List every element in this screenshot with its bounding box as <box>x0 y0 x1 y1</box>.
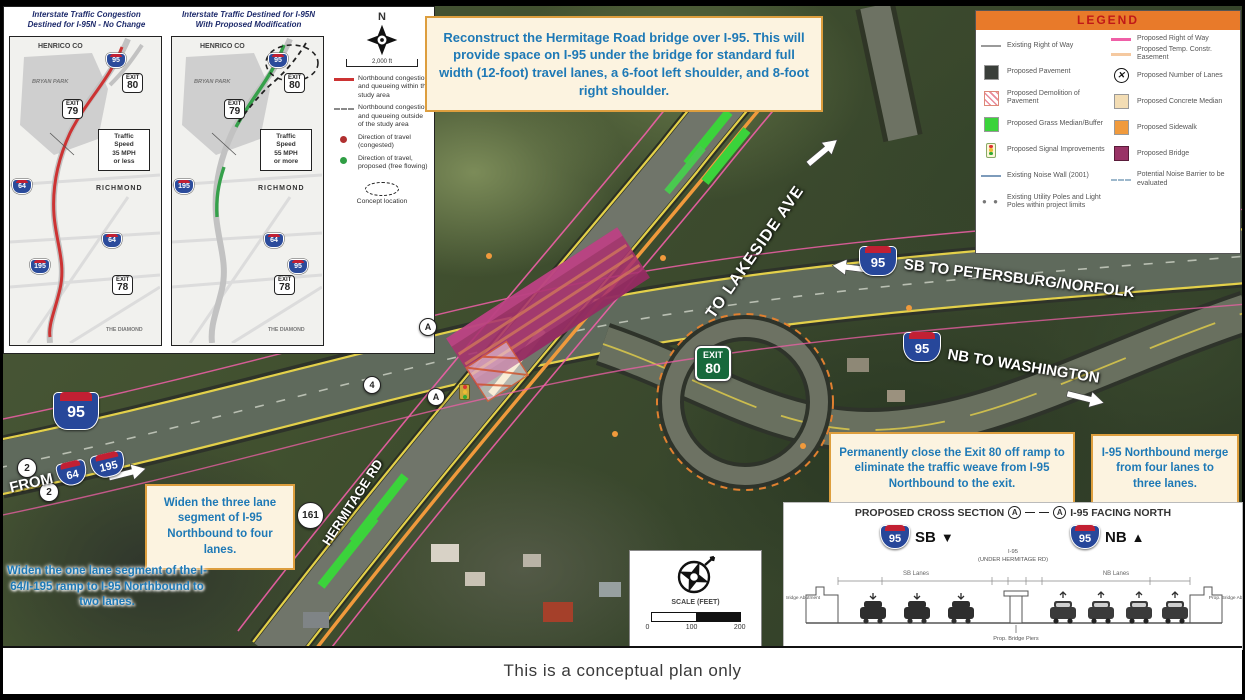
i195-shield: 195 <box>174 179 194 194</box>
inset-scale: 2,000 ft <box>346 59 418 67</box>
concept-oval-swatch <box>365 182 399 196</box>
north-compass-icon <box>332 23 432 59</box>
demolition-swatch-icon <box>980 91 1002 106</box>
legend-item: Existing Noise Wall (2001) <box>980 163 1106 189</box>
utility-pole-dot <box>906 305 912 311</box>
building <box>887 390 905 402</box>
inset-left-map: HENRICO CO BRYAN PARK RICHMOND THE DIAMO… <box>9 36 162 346</box>
right-abutment-label: Prop. Bridge Abutment <box>1209 595 1242 601</box>
scale-bar <box>651 612 741 622</box>
arrow-to-lakeside <box>803 134 842 171</box>
city-label: RICHMOND <box>96 185 143 192</box>
inset-legend: N 2,000 ft Northbound congestion and que… <box>332 11 432 351</box>
diamond-label: THE DIAMOND <box>106 327 143 333</box>
utility-pole-dot <box>612 431 618 437</box>
building <box>523 554 541 567</box>
legend-left-column: Existing Right of Way Proposed Pavement … <box>980 33 1106 215</box>
legend-item: Proposed Grass Median/Buffer <box>980 111 1106 137</box>
building-red-roof <box>543 602 573 622</box>
section-marker-a: A <box>1008 506 1021 519</box>
speed-box: Traffic Speed 55 MPH or more <box>260 129 312 171</box>
i64-shield: 64 <box>102 233 122 248</box>
footer-strip: This is a conceptual plan only <box>3 646 1242 694</box>
pavement-swatch-icon <box>980 65 1002 80</box>
traffic-signal-marker <box>459 384 470 400</box>
i95-shield-nb: 95 <box>903 332 941 362</box>
building <box>303 612 329 628</box>
exit-78-sign: EXIT78 <box>274 275 295 295</box>
utility-pole-dot <box>486 253 492 259</box>
lane-count-marker-4: 4 <box>363 376 381 394</box>
bridge-pier <box>1010 595 1022 623</box>
left-abutment <box>806 587 838 623</box>
legend-item: Proposed Bridge <box>1110 141 1236 167</box>
nb-lanes-label: NB Lanes <box>1103 571 1129 577</box>
inset-proposed: Interstate Traffic Destined for I-95N Wi… <box>169 10 328 350</box>
red-line-swatch <box>334 78 354 81</box>
cross-section-marker-a: A <box>419 318 437 336</box>
callout-widen-one-lane: Widen the one lane segment of the I-64/I… <box>5 564 209 611</box>
legend-item-travel-congested: Direction of travel (congested) <box>334 134 430 151</box>
building <box>847 358 869 372</box>
north-label: N <box>332 11 432 23</box>
inset-right-title: Interstate Traffic Destined for I-95N Wi… <box>169 10 328 34</box>
piers-label: Prop. Bridge Piers <box>993 636 1039 642</box>
i95-shield: 95 <box>288 259 308 274</box>
legend-item: Proposed Temp. Constr. Easement <box>1110 46 1236 63</box>
legend-item: Proposed Right of Way <box>1110 33 1236 46</box>
building <box>599 582 621 597</box>
exit-79-sign: EXIT79 <box>62 99 83 119</box>
exit-80-sign: EXIT80 <box>284 73 305 93</box>
sb-cars <box>860 593 974 624</box>
xsec-subtitle: I-95 (UNDER HERMITAGE RD) <box>784 549 1242 564</box>
i95-shield-xsec: 95 <box>1070 525 1100 549</box>
conceptual-plan-page: Interstate Traffic Congestion Destined f… <box>0 0 1245 700</box>
signal-icon <box>980 143 1002 158</box>
i95-shield-left: 95 <box>53 392 99 430</box>
cross-section-title: PROPOSED CROSS SECTION A A I-95 FACING N… <box>784 506 1242 519</box>
cross-section-marker-a: A <box>427 388 445 406</box>
number-of-lanes-icon: ✕ <box>1110 68 1132 83</box>
building <box>431 544 459 562</box>
dashed-line-swatch <box>334 108 354 110</box>
legend-item: ✕ Proposed Number of Lanes <box>1110 63 1236 89</box>
grass-swatch-icon <box>980 117 1002 132</box>
exit-78-sign: EXIT78 <box>112 275 133 295</box>
i64-shield: 64 <box>264 233 284 248</box>
building <box>465 572 485 586</box>
i195-shield: 195 <box>30 259 50 274</box>
exit-80-map-sign: EXIT 80 <box>695 346 731 381</box>
legend-item: Existing Right of Way <box>980 33 1106 59</box>
utility-poles-icon: ● ● <box>980 197 1002 207</box>
legend-item-congestion-within: Northbound congestion and queueing withi… <box>334 75 430 100</box>
legend-item: Proposed Demolition of Pavement <box>980 85 1106 111</box>
callout-nb-merge: I-95 Northbound merge from four lanes to… <box>1091 434 1239 504</box>
callout-close-exit80: Permanently close the Exit 80 off ramp t… <box>829 432 1075 506</box>
legend-item-concept-location: Concept location <box>334 182 430 206</box>
callout-bridge-reconstruct: Reconstruct the Hermitage Road bridge ov… <box>425 16 823 112</box>
legend-item: Proposed Pavement <box>980 59 1106 85</box>
nb-cars <box>1050 592 1188 624</box>
sidewalk-swatch-icon <box>1110 120 1132 135</box>
legend-item: Proposed Sidewalk <box>1110 115 1236 141</box>
up-arrow-icon: ▲ <box>1132 530 1145 545</box>
county-label: HENRICO CO <box>38 43 83 50</box>
down-arrow-icon: ▼ <box>941 530 954 545</box>
legend-title: LEGEND <box>976 11 1240 30</box>
sb-direction: 95 SB ▼ <box>880 525 954 549</box>
legend-panel: LEGEND Existing Right of Way Proposed Pa… <box>975 10 1241 254</box>
temp-easement-line-icon <box>1110 53 1132 56</box>
i95-shield-sb: 95 <box>859 246 897 276</box>
legend-item: Proposed Concrete Median <box>1110 89 1236 115</box>
i95-shield: 95 <box>106 53 126 68</box>
legend-item: Proposed Signal Improvements <box>980 137 1106 163</box>
left-abutment-label: Prop. Bridge Abutment <box>786 595 821 601</box>
scale-ticks: 0 100 200 <box>646 624 746 631</box>
aerial-map: Interstate Traffic Congestion Destined f… <box>3 6 1242 646</box>
diamond-label: THE DIAMOND <box>268 327 305 333</box>
callout-widen-three-lane: Widen the three lane segment of I-95 Nor… <box>145 484 295 570</box>
inset-right-map: HENRICO CO BRYAN PARK RICHMOND THE DIAMO… <box>171 36 324 346</box>
inset-left-title: Interstate Traffic Congestion Destined f… <box>7 10 166 34</box>
proposed-row-line-icon <box>1110 38 1132 41</box>
utility-pole-dot <box>800 443 806 449</box>
county-label: HENRICO CO <box>200 43 245 50</box>
legend-item-congestion-outside: Northbound congestion and queueing outsi… <box>334 104 430 129</box>
red-dot-swatch <box>340 136 347 143</box>
route-161-shield: 161 <box>297 502 324 529</box>
utility-pole-dot <box>660 255 666 261</box>
right-abutment <box>1190 587 1222 623</box>
noise-barrier-line-icon <box>1110 179 1132 181</box>
i95-shield-xsec: 95 <box>880 525 910 549</box>
section-marker-a: A <box>1053 506 1066 519</box>
scale-label: SCALE (FEET) <box>671 599 719 606</box>
legend-right-column: Proposed Right of Way Proposed Temp. Con… <box>1110 33 1236 215</box>
i64-shield: 64 <box>12 179 32 194</box>
city-label: RICHMOND <box>258 185 305 192</box>
cross-section-diagram: SB Lanes NB Lanes Prop. Bridge Piers <box>786 565 1242 645</box>
footer-caption: This is a conceptual plan only <box>503 661 741 681</box>
inset-maps-panel: Interstate Traffic Congestion Destined f… <box>3 6 435 354</box>
noise-wall-line-icon <box>980 175 1002 177</box>
compass-icon <box>674 555 718 597</box>
concrete-median-swatch-icon <box>1110 94 1132 109</box>
nb-direction: 95 NB ▲ <box>1070 525 1145 549</box>
legend-item: Potential Noise Barrier to be evaluated <box>1110 167 1236 193</box>
park-label: BRYAN PARK <box>194 79 230 85</box>
existing-row-line-icon <box>980 45 1002 47</box>
speed-box: Traffic Speed 35 MPH or less <box>98 129 150 171</box>
green-dot-swatch <box>340 157 347 164</box>
legend-item: ● ● Existing Utility Poles and Light Pol… <box>980 189 1106 215</box>
inset-no-change: Interstate Traffic Congestion Destined f… <box>7 10 166 350</box>
i95-shield: 95 <box>268 53 288 68</box>
cross-section-panel: PROPOSED CROSS SECTION A A I-95 FACING N… <box>783 502 1243 650</box>
exit-80-sign: EXIT80 <box>122 73 143 93</box>
exit-79-sign: EXIT79 <box>224 99 245 119</box>
scale-panel: SCALE (FEET) 0 100 200 <box>629 550 762 648</box>
park-label: BRYAN PARK <box>32 79 68 85</box>
legend-item-travel-freeflow: Direction of travel, proposed (free flow… <box>334 155 430 172</box>
sb-lanes-label: SB Lanes <box>903 571 929 577</box>
bridge-swatch-icon <box>1110 146 1132 161</box>
